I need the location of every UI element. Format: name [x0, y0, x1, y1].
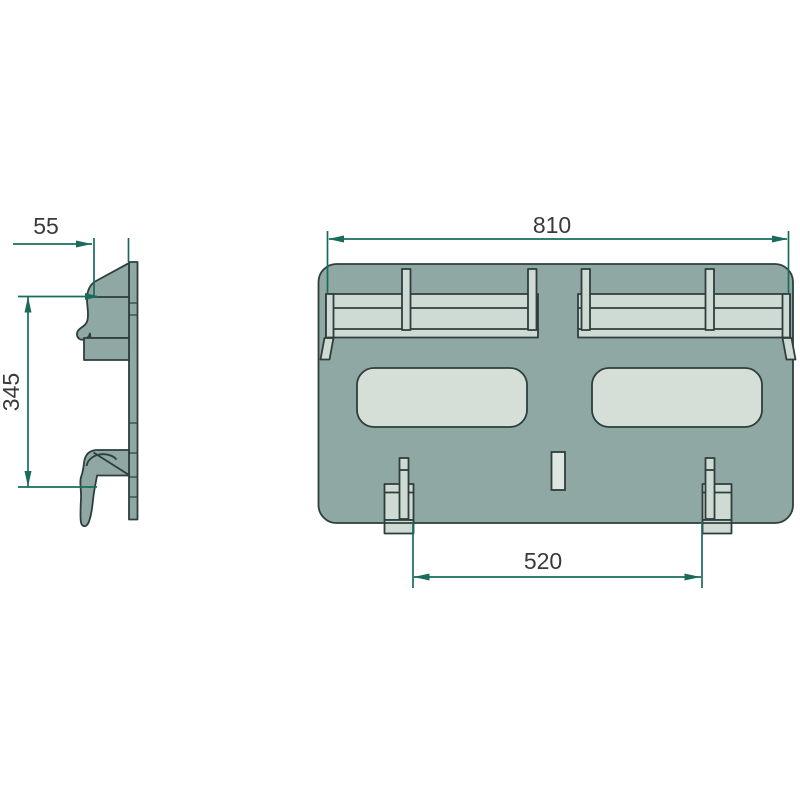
dim-520-arrow-left: [414, 574, 430, 581]
right-rail-endcap: [783, 294, 791, 338]
left-bracket-pin: [400, 458, 409, 519]
left-window: [357, 368, 527, 427]
left-rail-tab-1: [402, 269, 411, 330]
left-bracket-foot: [385, 520, 414, 534]
front-view: [319, 264, 796, 534]
center-slot: [552, 452, 566, 490]
dim-345-arrow-down: [25, 471, 32, 487]
dim-810-arrow-left: [328, 236, 344, 243]
left-rail-endcap: [326, 294, 334, 338]
side-upper-hook: [77, 263, 129, 340]
right-rail-tab-1: [582, 269, 591, 330]
dim-55-label: 55: [33, 213, 59, 239]
dim-55-arrow-right: [76, 241, 92, 248]
technical-drawing-canvas: 55 345 810 520: [0, 0, 800, 800]
dim-810-label: 810: [533, 212, 571, 238]
drawing-svg: 55 345 810 520: [0, 0, 800, 800]
side-back-plate: [129, 262, 138, 520]
dim-345-label: 345: [0, 373, 24, 411]
dim-520-arrow-right: [685, 574, 701, 581]
right-rail-tab-2: [706, 269, 715, 330]
dim-810-arrow-right: [772, 236, 788, 243]
dim-345-arrow-up: [25, 297, 32, 313]
side-upper-block: [84, 338, 129, 360]
dimension-345: 345: [0, 293, 99, 487]
right-window: [592, 368, 762, 427]
left-rail-tab-2: [528, 269, 537, 330]
right-bracket-pin: [706, 458, 715, 519]
right-bracket-foot: [703, 520, 732, 534]
left-rail-band: [326, 294, 538, 338]
dimension-520: 520: [413, 522, 702, 588]
dim-520-label: 520: [524, 548, 562, 574]
right-rail-band: [578, 294, 790, 338]
